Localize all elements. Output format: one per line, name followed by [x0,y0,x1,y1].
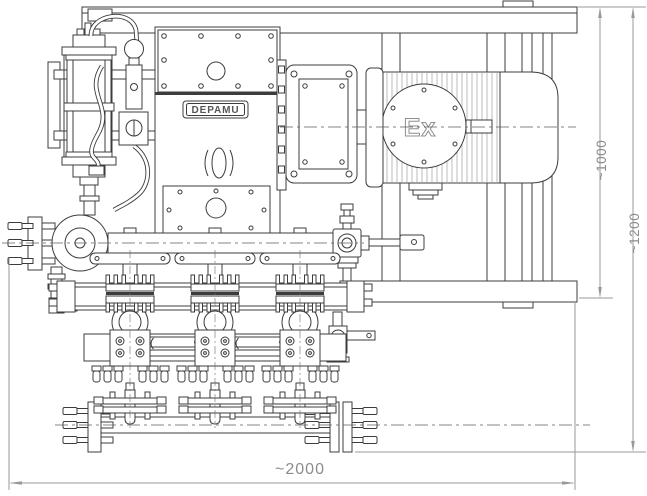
base-frame-beam [340,281,577,308]
dimension-height-1000: ~1000 [577,7,646,298]
brand-label: DEPAMU [192,105,240,116]
motor-junction-box [409,183,442,190]
depamu-nameplate: DEPAMU [183,101,248,118]
electric-motor: Ex [366,68,558,199]
valve-handle [369,239,403,246]
ex-marking: Ex [404,114,437,142]
head-tie-segment [143,337,203,356]
motor-end-cap [500,72,558,183]
pump-assembly-drawing: DEPAMU Ex [0,0,647,496]
suction-ball-valve [333,204,424,281]
oil-sight-glass [212,148,226,178]
head-tie-segment [228,337,288,356]
pump-gearbox: DEPAMU [155,27,286,233]
dim-label-1200: ~1200 [627,213,642,253]
dim-label-2000: ~2000 [275,461,325,478]
gauge-ball [125,40,144,59]
dim-label-1000: ~1000 [594,140,609,180]
coupling-housing [286,65,366,183]
lubrication-vessel [48,16,158,215]
